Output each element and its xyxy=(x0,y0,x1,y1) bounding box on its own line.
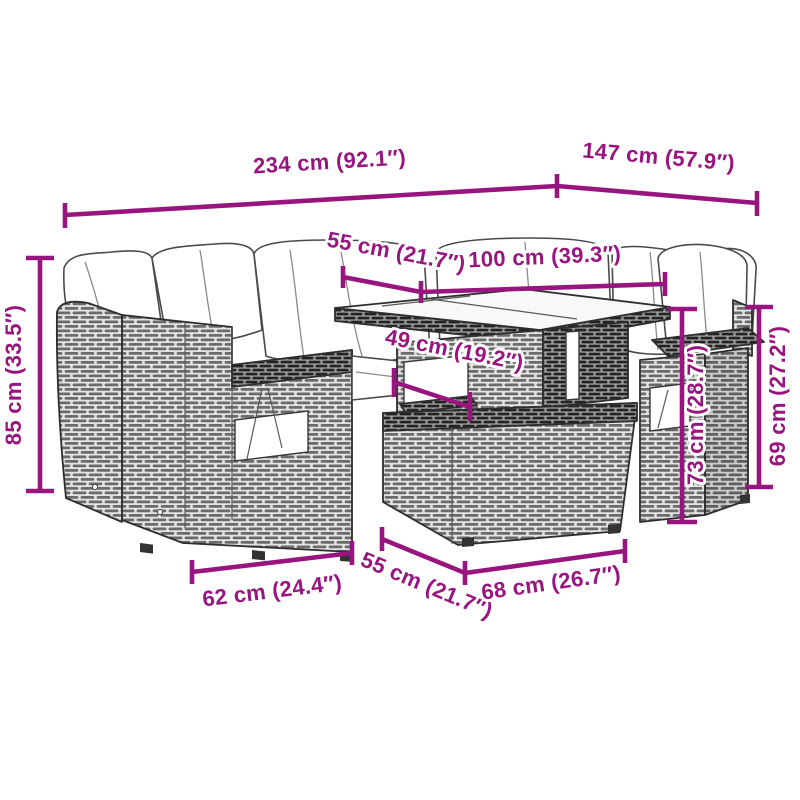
dim-label-overall-depth: 147 cm (57.9″) xyxy=(581,137,736,175)
dim-label-chair-height: 69 cm (27.2″) xyxy=(765,326,790,466)
furniture-illustration xyxy=(57,238,764,562)
dim-label-sofa-section-width: 62 cm (24.4″) xyxy=(201,570,343,612)
ottoman xyxy=(383,403,637,547)
dim-overall-width: 234 cm (92.1″) xyxy=(65,145,557,228)
sofa-left-arm xyxy=(57,302,122,522)
table-leg xyxy=(566,331,579,400)
diagram-canvas: 234 cm (92.1″) 147 cm (57.9″) 55 cm (21.… xyxy=(0,0,800,800)
product-dimension-diagram: 234 cm (92.1″) 147 cm (57.9″) 55 cm (21.… xyxy=(0,0,800,800)
dim-overall-depth: 147 cm (57.9″) xyxy=(557,137,757,216)
dim-label-overall-width: 234 cm (92.1″) xyxy=(252,145,406,179)
dim-line xyxy=(557,186,757,216)
dim-label-sofa-height: 85 cm (33.5″) xyxy=(1,305,26,445)
table-base-side xyxy=(543,322,628,408)
dim-sofa-height: 85 cm (33.5″) xyxy=(1,258,54,491)
dim-ottoman-depth: 68 cm (26.7″) xyxy=(465,539,625,605)
sofa-side-opening xyxy=(235,411,308,461)
dim-line xyxy=(65,174,557,228)
dim-line xyxy=(26,258,54,491)
dim-label-table-height: 73 cm (28.7″) xyxy=(683,345,708,485)
